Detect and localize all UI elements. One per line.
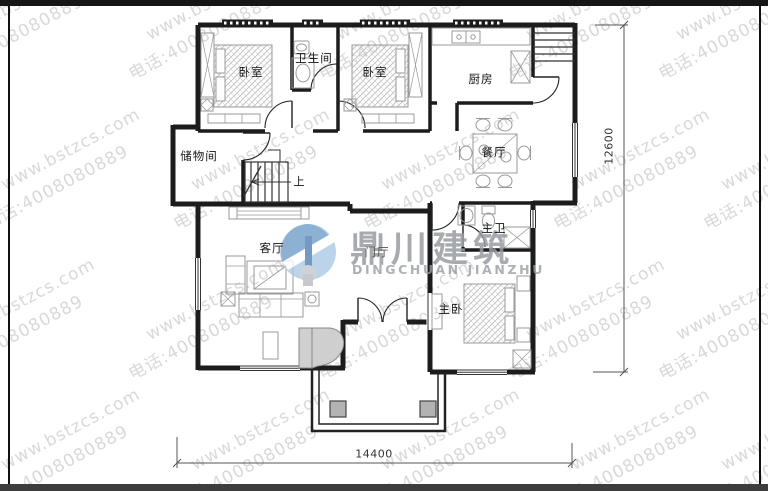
stairs-upper bbox=[533, 33, 575, 61]
room-label-kitchen: 厨房 bbox=[469, 71, 494, 87]
room-label-living: 客厅 bbox=[260, 240, 285, 256]
room-label-bathroom: 卫生间 bbox=[295, 50, 333, 66]
room-label-dining: 餐厅 bbox=[482, 144, 507, 160]
room-label-storage: 储物间 bbox=[180, 148, 218, 164]
room-label-bedroom-right: 卧室 bbox=[363, 64, 388, 80]
room-label-master-bath: 主卫 bbox=[482, 220, 507, 236]
floor-plan-page: www.bstzcs.com电话:4008080889www.bstzcs.co… bbox=[0, 0, 768, 491]
room-label-bedroom-left: 卧室 bbox=[239, 64, 264, 80]
frame-right-line bbox=[759, 6, 761, 484]
dimension-overall-height: 12600 bbox=[603, 127, 616, 165]
frame-bottom-bar bbox=[0, 484, 768, 491]
room-label-master-bedroom: 主卧 bbox=[439, 301, 464, 317]
frame-left-line bbox=[8, 6, 10, 484]
room-label-foyer: 门厅 bbox=[365, 244, 390, 260]
stairs-up-label: 上 bbox=[294, 173, 305, 189]
dimension-overall-width: 14400 bbox=[355, 448, 393, 461]
stairs-main bbox=[244, 150, 291, 202]
top-window-bars bbox=[222, 20, 503, 27]
frame-top-bar bbox=[0, 0, 768, 6]
entrance-porch bbox=[312, 368, 445, 431]
